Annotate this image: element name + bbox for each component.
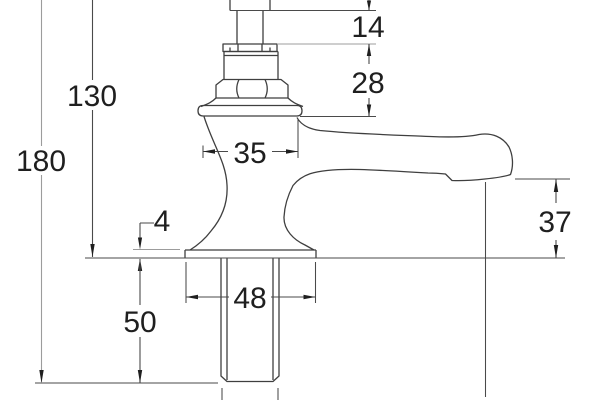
dimension-spout-clearance: 37 [538,179,571,258]
arrowhead-left [203,149,215,153]
dimension-tail-length: 50 [123,259,156,383]
dim-label-180: 180 [16,145,66,178]
body-left-edge [190,117,227,251]
tap-outline [185,0,512,382]
dim-label-28: 28 [351,67,384,100]
arrowhead-down [138,370,142,383]
arrowhead-down [554,245,558,258]
spout [284,118,513,251]
arrowhead-right [286,149,298,153]
dim-label-50: 50 [123,306,156,339]
arrowhead-right [304,295,316,299]
tap-technical-drawing: 180 130 14 28 35 4 50 [0,0,600,400]
leader-line [140,223,154,238]
arrowhead-down [138,238,142,250]
gland-flange [223,44,277,52]
dim-label-130: 130 [67,80,117,113]
dim-label-35: 35 [233,137,266,170]
spindle-stem [237,11,263,45]
dimension-overall-height: 180 [16,0,66,383]
hex-nut [216,80,288,99]
arrowhead-down [90,244,94,257]
dim-label-14: 14 [351,11,384,44]
arrowhead-up [367,44,371,56]
dimension-spindle-exposed: 14 [351,0,384,44]
arrowhead-down [367,105,371,117]
dim-label-37: 37 [538,206,571,239]
extension-lines [35,11,570,400]
dimension-bonnet-height: 28 [351,44,384,117]
dimension-base-thickness: 4 [138,205,171,271]
arrowhead-left [186,295,198,299]
dimension-body-width: 35 [203,137,298,170]
dim-label-48: 48 [233,282,266,315]
tail-pipe [221,258,279,382]
dimension-base-width: 48 [186,282,316,315]
dimension-height-above-deck: 130 [67,0,117,257]
arrowhead-down [367,1,371,11]
dim-label-4: 4 [154,205,171,238]
drawing-canvas: 180 130 14 28 35 4 50 [0,0,600,400]
arrowhead-down [39,370,43,383]
bonnet-block [224,52,278,80]
handle-base [230,0,270,11]
bell-flange [198,98,303,116]
base-plate [185,250,316,258]
arrowhead-up [554,179,558,192]
